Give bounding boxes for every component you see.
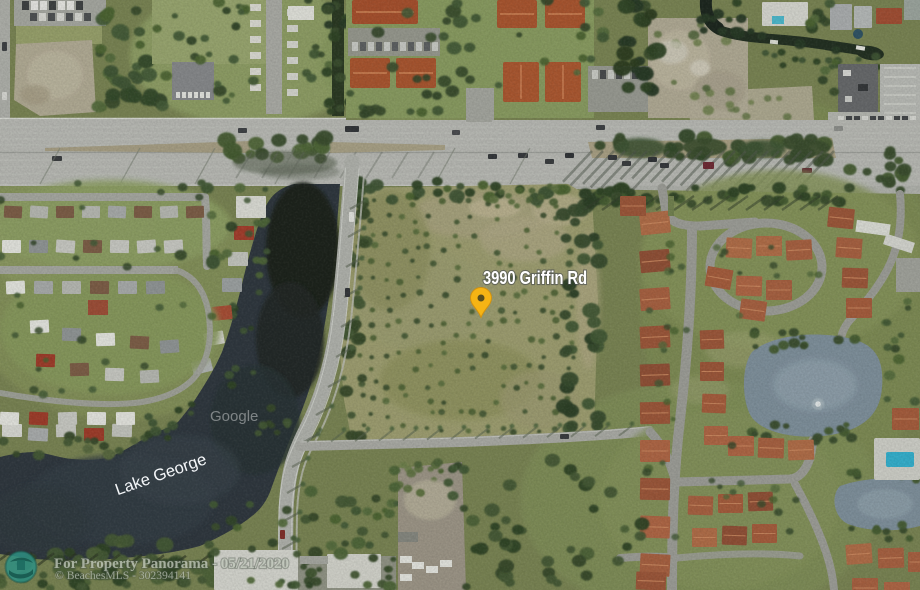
svg-text:Google: Google [210,408,258,425]
svg-text:© BeachesMLS - 302394141: © BeachesMLS - 302394141 [55,568,191,582]
svg-text:3990 Griffin Rd: 3990 Griffin Rd [483,268,587,288]
